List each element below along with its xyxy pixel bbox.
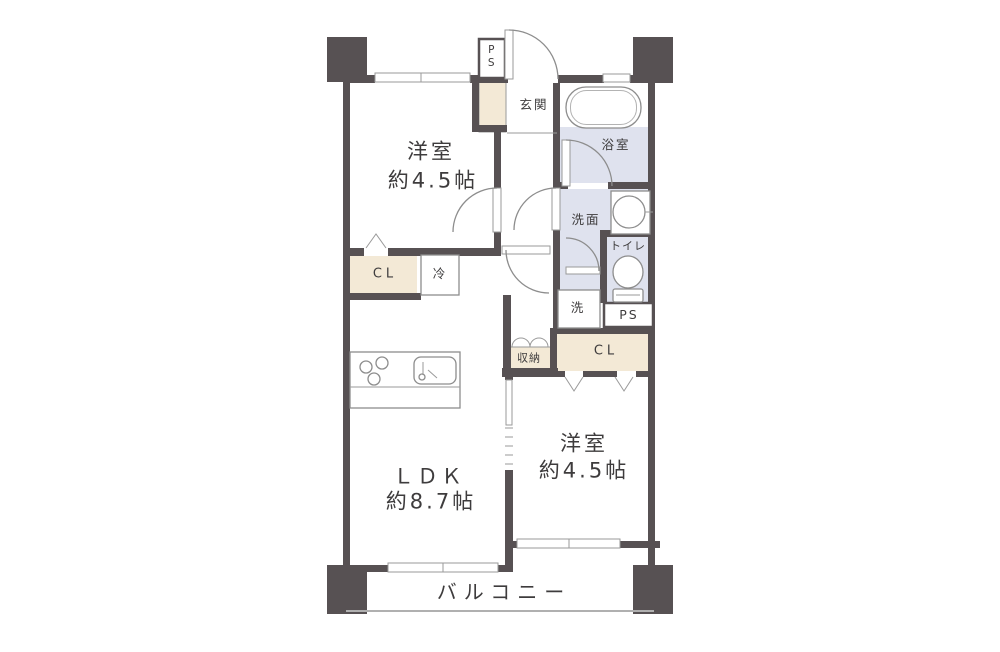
pillar-bottom-left xyxy=(327,565,367,614)
wall-western-bottom-a xyxy=(505,541,517,548)
wall-balcony-ldk-a xyxy=(343,565,388,572)
shoe-cabinet xyxy=(479,82,506,132)
label-fridge: 冷 xyxy=(433,268,448,281)
wall-top-d xyxy=(630,75,635,83)
wall-left xyxy=(343,75,350,567)
storage-fold-door-a xyxy=(512,338,530,347)
closet-left-fold-door xyxy=(366,234,386,248)
window-top xyxy=(375,73,470,82)
label-western-top-size: 約4.5帖 xyxy=(388,171,478,192)
wall-top-a xyxy=(350,75,375,83)
western-top-door-leaf xyxy=(493,188,501,232)
closet-right-fold-door-b xyxy=(615,377,633,391)
label-ldk-size: 約8.7帖 xyxy=(386,492,476,513)
label-washroom: 洗面 xyxy=(571,214,600,227)
western-top-door-arc xyxy=(453,188,497,232)
closet-right-fold-door-a xyxy=(565,377,583,391)
wall-top-c xyxy=(558,75,604,83)
wall-closet-right-bottom-b xyxy=(583,371,617,377)
wall-bath-left xyxy=(553,83,560,190)
label-ldk-name: ＬＤＫ xyxy=(393,467,465,488)
floorplan-drawing xyxy=(0,0,1000,652)
label-closet-right: CL xyxy=(594,345,618,358)
washroom-inner-door-leaf xyxy=(566,267,600,274)
ldk-door-arc xyxy=(506,250,549,293)
wall-shoebox-left xyxy=(472,78,479,132)
entrance-door-arc xyxy=(509,30,558,79)
closet-left-opening xyxy=(364,248,388,256)
wall-divider-top-stub xyxy=(505,371,513,380)
label-laundry: 洗 xyxy=(571,302,586,315)
label-bathroom: 浴室 xyxy=(601,139,630,152)
wall-bath-washroom-b xyxy=(608,182,648,189)
wall-under-shoebox xyxy=(472,125,507,132)
label-closet-left: CL xyxy=(373,268,397,281)
divider-sliding-door xyxy=(506,380,512,425)
pillar-bottom-right xyxy=(633,565,673,614)
washroom-hall-door-arc xyxy=(514,188,556,230)
label-toilet: トイレ xyxy=(610,241,646,252)
entrance-door-leaf xyxy=(505,30,513,79)
wall-hall-left-upper xyxy=(494,132,501,190)
label-western-bottom-size: 約4.5帖 xyxy=(539,461,629,482)
label-pipe-space-top: PS xyxy=(486,44,497,70)
wall-closet-right-bottom-c xyxy=(636,371,655,377)
bathroom-door-leaf xyxy=(562,140,570,186)
wall-below-closet-left xyxy=(343,293,421,300)
pillar-top-right xyxy=(633,37,673,83)
wall-divider-lower xyxy=(505,470,513,572)
divider-hatch xyxy=(505,428,513,464)
washroom-floor-lower xyxy=(560,230,600,290)
label-entrance: 玄関 xyxy=(519,99,548,112)
storage-fold-door-b xyxy=(530,338,548,347)
label-balcony: バルコニー xyxy=(437,582,572,602)
wall-ldk-right xyxy=(503,295,511,377)
washroom-hall-door-leaf xyxy=(552,188,560,230)
wall-above-closet-right xyxy=(553,328,655,334)
bathroom-floor xyxy=(560,127,648,183)
label-western-top-name: 洋室 xyxy=(407,142,455,163)
toilet-bowl-icon xyxy=(613,256,643,288)
wall-balcony-ldk-b xyxy=(498,565,513,572)
wall-right-stub xyxy=(648,541,655,567)
wall-closet-right-bottom-a xyxy=(553,371,565,377)
label-storage: 収納 xyxy=(517,353,541,364)
ldk-door-leaf xyxy=(502,246,550,254)
window-bathroom xyxy=(603,74,630,82)
label-western-bottom-name: 洋室 xyxy=(560,434,608,455)
floorplan: 洋室 約4.5帖 ＬＤＫ 約8.7帖 洋室 約4.5帖 バルコニー 玄関 浴室 … xyxy=(0,0,1000,652)
label-pipe-space-right: PS xyxy=(619,309,638,322)
wall-toilet-left xyxy=(600,237,607,303)
